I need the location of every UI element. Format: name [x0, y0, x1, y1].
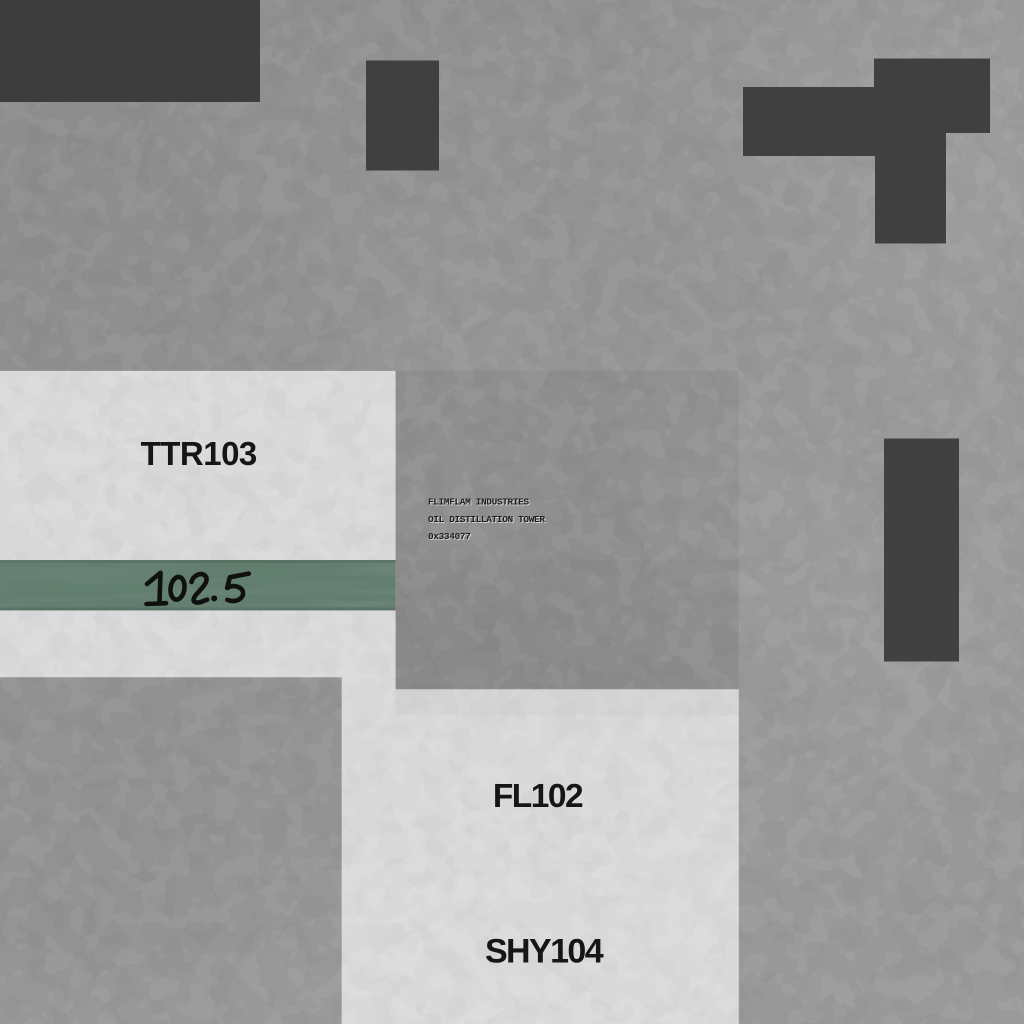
svg-text:0x334077: 0x334077: [428, 531, 471, 542]
svg-text:FLIMFLAM INDUSTRIES: FLIMFLAM INDUSTRIES: [428, 497, 529, 508]
svg-text:SHY104: SHY104: [485, 933, 604, 971]
svg-text:TTR103: TTR103: [141, 435, 257, 472]
svg-text:OIL DISTILLATION TOWER: OIL DISTILLATION TOWER: [428, 514, 545, 525]
svg-text:FL102: FL102: [493, 778, 583, 815]
